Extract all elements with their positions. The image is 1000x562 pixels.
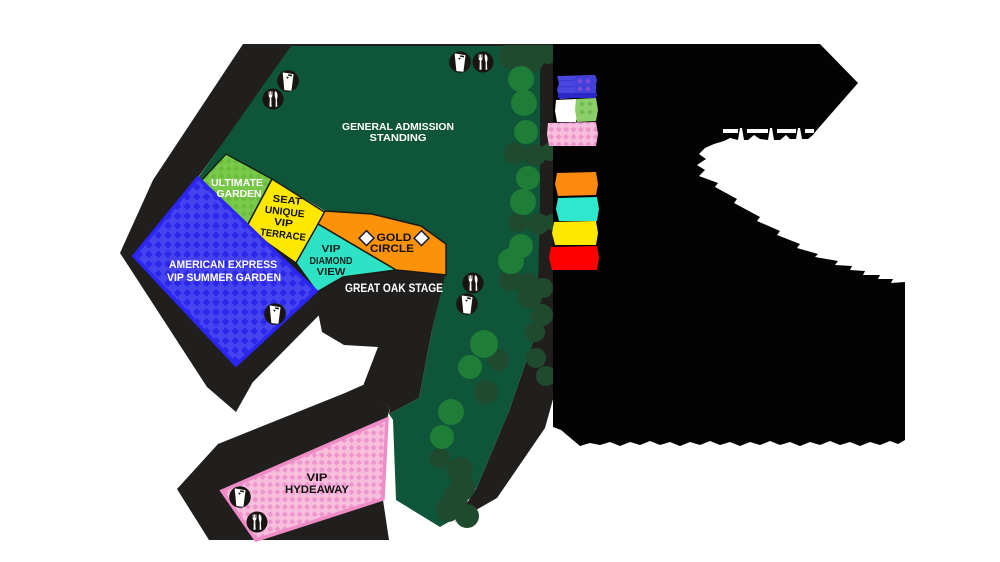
svg-text:AMERICAN EXPRESS: AMERICAN EXPRESS — [169, 259, 277, 271]
svg-text:ULTIMATE: ULTIMATE — [211, 178, 263, 189]
svg-text:VIP: VIP — [273, 217, 294, 230]
svg-text:DIAMOND: DIAMOND — [310, 256, 353, 267]
svg-text:STANDING: STANDING — [370, 132, 427, 144]
svg-text:VIP SUMMER GARDEN: VIP SUMMER GARDEN — [167, 272, 281, 284]
svg-text:HYDEAWAY: HYDEAWAY — [285, 484, 350, 496]
svg-text:VIP: VIP — [322, 244, 341, 255]
svg-text:CIRCLE: CIRCLE — [370, 243, 414, 255]
svg-text:VIEW: VIEW — [317, 267, 347, 278]
svg-text:GREAT OAK STAGE: GREAT OAK STAGE — [345, 281, 443, 295]
svg-text:VIP: VIP — [307, 472, 328, 484]
svg-text:GARDEN: GARDEN — [217, 189, 262, 200]
